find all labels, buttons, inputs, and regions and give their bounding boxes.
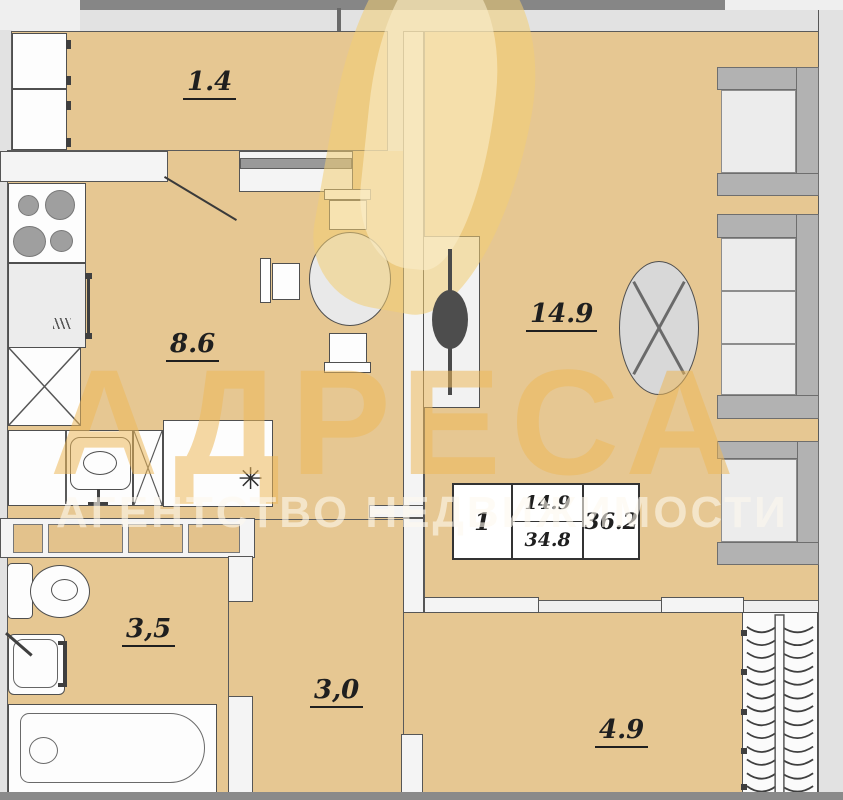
- armchair-back: [717, 542, 819, 565]
- wall-loggia-bottom: [0, 151, 168, 182]
- oval-table-icon: [619, 261, 699, 395]
- bathtub-icon: [8, 704, 217, 793]
- stove-burner: [50, 230, 73, 252]
- stool-bottom: [329, 333, 367, 363]
- vent-marks-icon: [53, 318, 71, 329]
- loggia-cabinet: [12, 33, 67, 89]
- floor-plan: ✳ 1 14.9: [0, 0, 843, 800]
- sofa-cushion: [721, 238, 796, 291]
- snowflake-icon: ✳: [238, 465, 263, 495]
- wardrobe-hook: [741, 784, 747, 790]
- wardrobe-hook: [741, 748, 747, 754]
- doorway-opening: [423, 236, 480, 408]
- loggia-cabinet: [12, 89, 67, 150]
- exterior-wall-bottom-band: [0, 792, 843, 800]
- basin-bracket-nub: [58, 683, 65, 687]
- label-living: 14.9: [526, 300, 597, 332]
- area-stamp-table: 1 14.9 34.8 36.2: [452, 483, 640, 560]
- dining-table-icon: [309, 232, 391, 326]
- window-glazing: [240, 158, 352, 169]
- stove-icon: [8, 183, 86, 263]
- wall-kitchen-living: [403, 31, 424, 518]
- sink-bowl: [83, 451, 117, 475]
- label-hallway: 3,0: [310, 676, 363, 708]
- armchair-seat: [721, 459, 797, 542]
- stamp-areas-cell: 14.9 34.8: [513, 485, 583, 558]
- label-loggia: 1.4: [183, 68, 236, 100]
- sofa-arm: [717, 395, 819, 419]
- label-bathroom: 3,5: [122, 615, 175, 647]
- stove-burner: [13, 226, 46, 257]
- wall-living-bottom-a: [424, 597, 539, 613]
- wall-duct-band: [0, 518, 255, 558]
- wardrobe-icon: [742, 612, 818, 798]
- rooms-count: 1: [474, 507, 491, 536]
- wardrobe-hook: [741, 669, 747, 675]
- duct-block: [188, 524, 240, 553]
- exterior-wall-right: [818, 10, 843, 796]
- sofa-icon: [717, 214, 819, 419]
- label-kitchen: 8.6: [166, 330, 219, 362]
- wall-hall-top: [369, 505, 424, 518]
- exterior-wall-top-band: [80, 0, 725, 10]
- living-area-cell: 14.9: [513, 485, 583, 522]
- sink-counter: [8, 430, 133, 506]
- door-leaf-cap: [85, 333, 92, 339]
- kitchen-counter: [8, 263, 86, 348]
- wardrobe-rail: [775, 615, 784, 795]
- toilet-bowl: [51, 579, 78, 601]
- armchair-arm: [717, 173, 819, 196]
- cabinet-hinge: [66, 101, 71, 110]
- extra-area-cell: 34.8: [513, 522, 583, 558]
- stove-burner: [18, 195, 39, 216]
- wall-hall-vert: [403, 518, 424, 613]
- armchair-icon: [717, 67, 819, 196]
- wardrobe-hook: [741, 709, 747, 715]
- sofa-cushion: [721, 291, 796, 344]
- armchair-icon: [717, 441, 819, 565]
- basin-bracket-nub: [58, 641, 65, 645]
- living-area: 14.9: [524, 492, 570, 514]
- extra-area: 34.8: [524, 529, 570, 551]
- stool-top-bar: [324, 189, 371, 200]
- fridge-icon: [8, 347, 81, 426]
- door-leaf-cap: [85, 273, 92, 279]
- wall-bath-right-bottom: [228, 696, 253, 793]
- loggia-window: [239, 151, 353, 192]
- chair-left: [272, 263, 300, 300]
- sofa-back: [796, 214, 819, 419]
- sink-tap-bar: [88, 502, 108, 505]
- wall-bath-right-top: [228, 556, 253, 602]
- stamp-total-cell: 36.2: [582, 485, 638, 558]
- door-leaf: [87, 276, 90, 336]
- kitchen-counter-2: ✳: [163, 420, 273, 507]
- wardrobe-hook: [741, 630, 747, 636]
- exterior-wall-top-fill: [80, 10, 843, 31]
- duct-block: [48, 524, 123, 553]
- counter-divider: [65, 431, 67, 504]
- stool-top: [329, 200, 367, 230]
- bathtub-drain: [29, 737, 58, 764]
- stamp-rooms-cell: 1: [454, 485, 513, 558]
- cabinet-hinge: [66, 138, 71, 147]
- wall-dressing-left: [401, 734, 423, 793]
- total-area: 36.2: [584, 509, 638, 535]
- cabinet-hinge: [66, 40, 71, 49]
- stool-bottom-bar: [324, 362, 371, 373]
- armchair-seat: [721, 90, 796, 173]
- basin-bracket: [63, 641, 67, 687]
- washer-icon: [133, 430, 163, 506]
- label-dressing: 4.9: [595, 716, 648, 748]
- wall-living-bottom-b: [661, 597, 744, 613]
- sofa-cushion: [721, 344, 796, 395]
- wall-loggia-living: [388, 31, 404, 151]
- stove-burner: [45, 190, 75, 220]
- duct-block: [13, 524, 43, 553]
- wall-tick: [337, 8, 341, 31]
- toilet-icon: [30, 565, 90, 618]
- chair-left-bar: [260, 258, 271, 303]
- duct-block: [128, 524, 183, 553]
- cabinet-hinge: [66, 76, 71, 85]
- room-hallway: [228, 519, 425, 793]
